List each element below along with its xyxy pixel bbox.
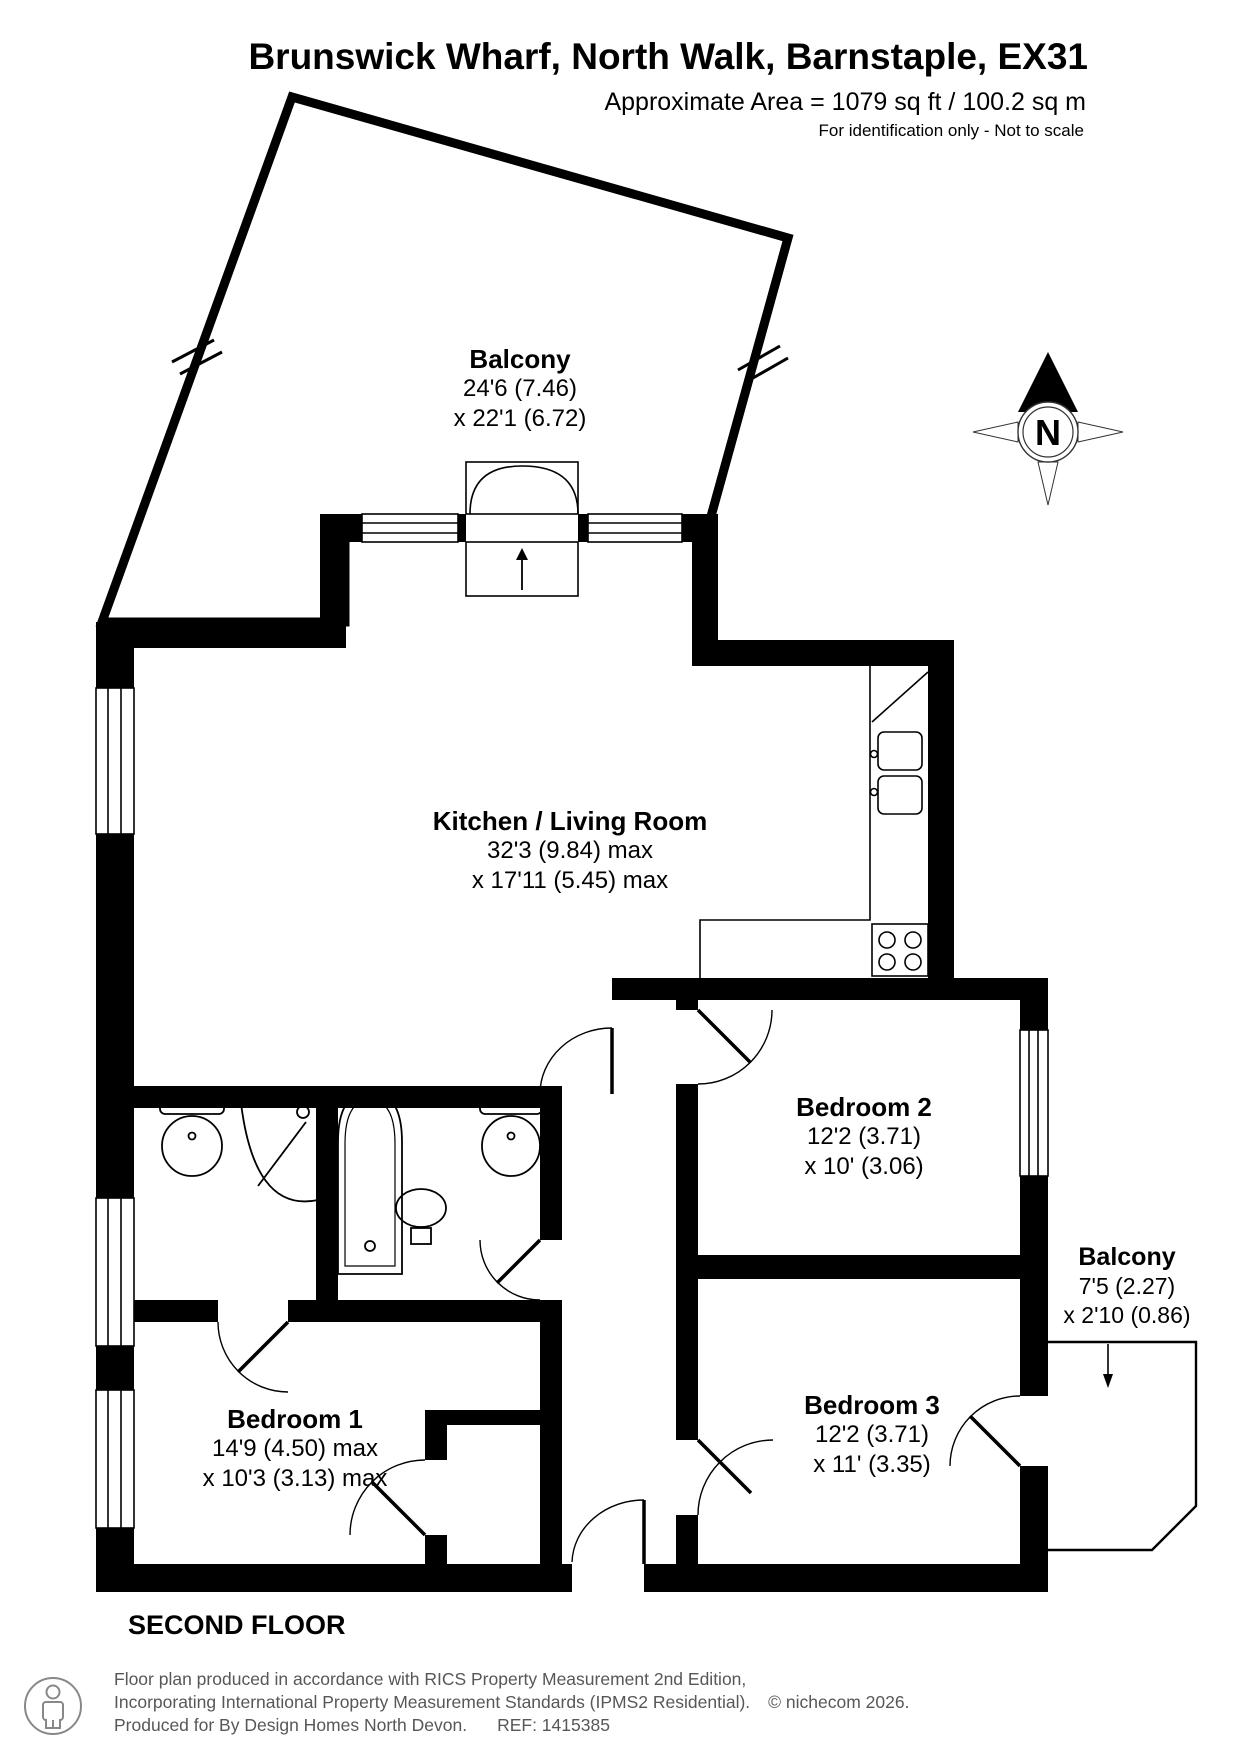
footer-text: Floor plan produced in accordance with R…	[114, 1668, 909, 1737]
floorplan-page: { "header": { "title": "Brunswick Wharf,…	[0, 0, 1241, 1755]
floor-label: SECOND FLOOR	[128, 1610, 346, 1641]
compass-south-point	[1038, 462, 1058, 505]
shower-icon	[240, 1094, 318, 1201]
room-dimension: x 2'10 (0.86)	[1015, 1301, 1239, 1330]
plan-title: Brunswick Wharf, North Walk, Barnstaple,…	[248, 36, 1088, 78]
bathrooms	[160, 1092, 542, 1274]
room-name: Balcony	[390, 344, 650, 374]
compass-west-point	[973, 422, 1018, 442]
balcony-right-outline	[1048, 1342, 1196, 1550]
room-dimension: 24'6 (7.46)	[390, 374, 650, 404]
room-name: Balcony	[1015, 1243, 1239, 1272]
room-name: Bedroom 1	[163, 1404, 427, 1434]
room-label-bedroom-2: Bedroom 2 12'2 (3.71) x 10' (3.06)	[734, 1092, 994, 1182]
room-name: Bedroom 3	[742, 1390, 1002, 1420]
footer: Floor plan produced in accordance with R…	[22, 1668, 909, 1748]
room-dimension: x 10' (3.06)	[734, 1152, 994, 1182]
room-dimension: 12'2 (3.71)	[734, 1122, 994, 1152]
footer-line-2-text: Incorporating International Property Mea…	[114, 1691, 750, 1714]
room-name: Bedroom 2	[734, 1092, 994, 1122]
area-text: Approximate Area = 1079 sq ft / 100.2 sq…	[604, 88, 1086, 117]
kitchen-sink-icon	[871, 732, 923, 814]
room-dimension: 7'5 (2.27)	[1015, 1272, 1239, 1301]
room-dimension: 14'9 (4.50) max	[163, 1434, 427, 1464]
kitchen-counter	[700, 666, 928, 978]
room-label-kitchen-living: Kitchen / Living Room 32'3 (9.84) max x …	[430, 806, 710, 896]
room-dimension: x 10'3 (3.13) max	[163, 1464, 427, 1494]
room-dimension: x 22'1 (6.72)	[390, 404, 650, 434]
windows	[96, 514, 1048, 1528]
nichecom-person-icon	[22, 1668, 84, 1748]
room-label-bedroom-1: Bedroom 1 14'9 (4.50) max x 10'3 (3.13) …	[163, 1404, 427, 1494]
hob-icon	[872, 924, 928, 976]
room-label-balcony-right: Balcony 7'5 (2.27) x 2'10 (0.86)	[1015, 1243, 1239, 1330]
compass-east-point	[1078, 422, 1123, 442]
footer-line-1: Floor plan produced in accordance with R…	[114, 1668, 909, 1691]
produced-for-text: Produced for By Design Homes North Devon…	[114, 1714, 467, 1737]
compass-label: N	[1035, 412, 1061, 453]
room-dimension: x 11' (3.35)	[742, 1450, 1002, 1480]
basin-icon	[396, 1189, 446, 1244]
room-dimension: 12'2 (3.71)	[742, 1420, 1002, 1450]
room-dimension: x 17'11 (5.45) max	[430, 866, 710, 896]
compass-icon: N	[973, 352, 1123, 505]
footer-line-2: Incorporating International Property Mea…	[114, 1691, 909, 1714]
copyright-text: © nichecom 2026.	[768, 1691, 909, 1714]
room-label-balcony-top: Balcony 24'6 (7.46) x 22'1 (6.72)	[390, 344, 650, 434]
corner-unit	[872, 672, 928, 722]
ref-number: REF: 1415385	[497, 1714, 610, 1737]
room-dimension: 32'3 (9.84) max	[430, 836, 710, 866]
bathtub-icon	[338, 1092, 402, 1274]
disclaimer-text: For identification only - Not to scale	[818, 121, 1084, 141]
footer-line-3: Produced for By Design Homes North Devon…	[114, 1714, 909, 1737]
room-label-bedroom-3: Bedroom 3 12'2 (3.71) x 11' (3.35)	[742, 1390, 1002, 1480]
room-name: Kitchen / Living Room	[430, 806, 710, 836]
